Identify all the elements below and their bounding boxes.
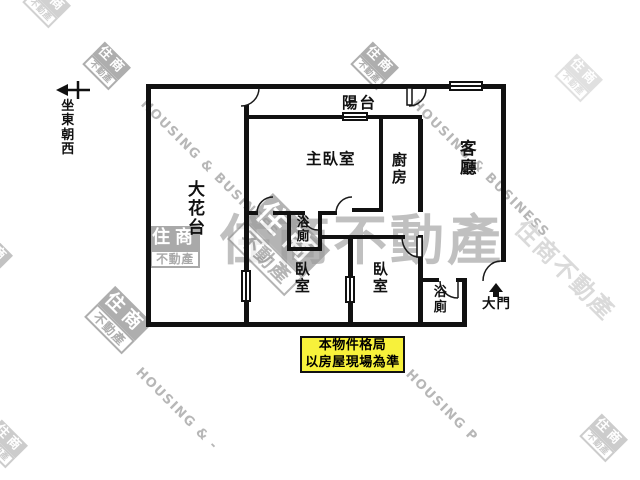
room-label-bedroom-1: 臥室 [294, 261, 311, 295]
disclaimer-notice: 本物件格局 以房屋現場為準 [300, 336, 405, 373]
orientation-label: 坐東朝西 [61, 100, 76, 157]
door-arc-bedroom1 [257, 197, 273, 213]
room-label-bathroom-1: 浴廁 [296, 215, 310, 243]
entrance-arrow-icon [489, 283, 503, 292]
door-arc-main-entrance [483, 261, 501, 281]
door-symbols [0, 0, 640, 480]
floorplan-canvas: HOUSING & BUSINESS HOUSING & BUSINESS HO… [0, 0, 640, 480]
door-leaf-bedroom2 [417, 237, 422, 257]
room-label-master-bedroom: 主臥室 [306, 151, 356, 169]
room-label-kitchen: 廚房 [391, 152, 408, 186]
door-leaf-balcony-right [407, 88, 412, 105]
door-arc-balcony-left [241, 88, 259, 106]
room-label-living-room: 客廳 [459, 139, 477, 178]
compass-arrow-icon [54, 79, 92, 101]
room-label-balcony: 陽台 [342, 95, 377, 113]
room-label-bedroom-2: 臥室 [372, 261, 389, 295]
door-arc-master-bedroom [336, 197, 352, 213]
room-label-bathroom-2: 浴廁 [433, 286, 448, 315]
room-label-flower-terrace: 大花台 [187, 181, 206, 238]
disclaimer-line1: 本物件格局 [319, 338, 387, 355]
disclaimer-line2: 以房屋現場為準 [305, 355, 400, 372]
main-door-label: 大門 [482, 297, 511, 313]
